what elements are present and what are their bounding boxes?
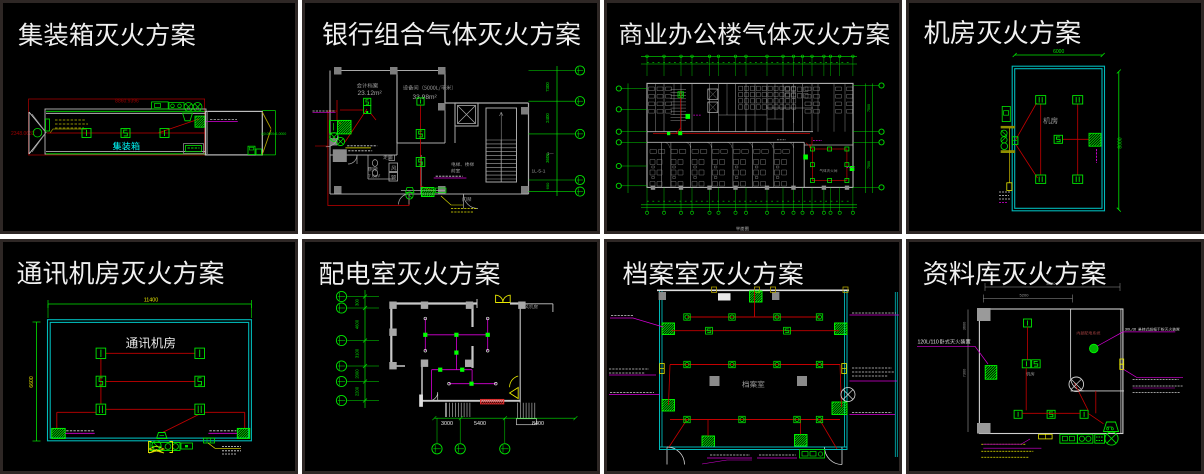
svg-text:5200: 5200 [1020,293,1030,298]
svg-text:120L/110: 120L/110 [918,340,939,346]
svg-text:6000: 6000 [1053,49,1064,55]
svg-text:8860.9396: 8860.9396 [115,99,139,105]
svg-text:30L/3t: 30L/3t [1125,327,1137,332]
svg-text:33.98m²: 33.98m² [413,94,438,101]
svg-text:8740: 8740 [1047,281,1057,286]
svg-text:6600: 6600 [29,376,35,388]
svg-text:2200: 2200 [355,386,360,396]
svg-text:8000: 8000 [1118,137,1124,148]
svg-text:4600: 4600 [355,319,360,329]
svg-text:5400: 5400 [474,421,486,427]
svg-text:7300: 7300 [963,369,967,377]
svg-text:11400: 11400 [144,298,159,304]
svg-text:2348.0632: 2348.0632 [11,131,35,137]
svg-text:3600: 3600 [545,153,550,163]
svg-text:23.12m²: 23.12m² [358,90,383,97]
svg-text:7500: 7500 [867,104,871,112]
svg-text:4|0.0000x1.0000: 4|0.0000x1.0000 [261,132,286,136]
svg-text:2000: 2000 [355,369,360,379]
svg-text:8400: 8400 [532,421,544,427]
svg-text:600: 600 [545,182,550,189]
svg-text:300: 300 [355,298,360,306]
svg-text:3600: 3600 [963,322,967,330]
svg-text:3000: 3000 [441,421,453,427]
svg-text:7500: 7500 [867,161,871,169]
svg-text:3100: 3100 [355,348,360,358]
svg-text:7300: 7300 [545,82,550,92]
svg-text:1L-5-1: 1L-5-1 [532,168,546,174]
svg-text:2400: 2400 [545,113,550,123]
